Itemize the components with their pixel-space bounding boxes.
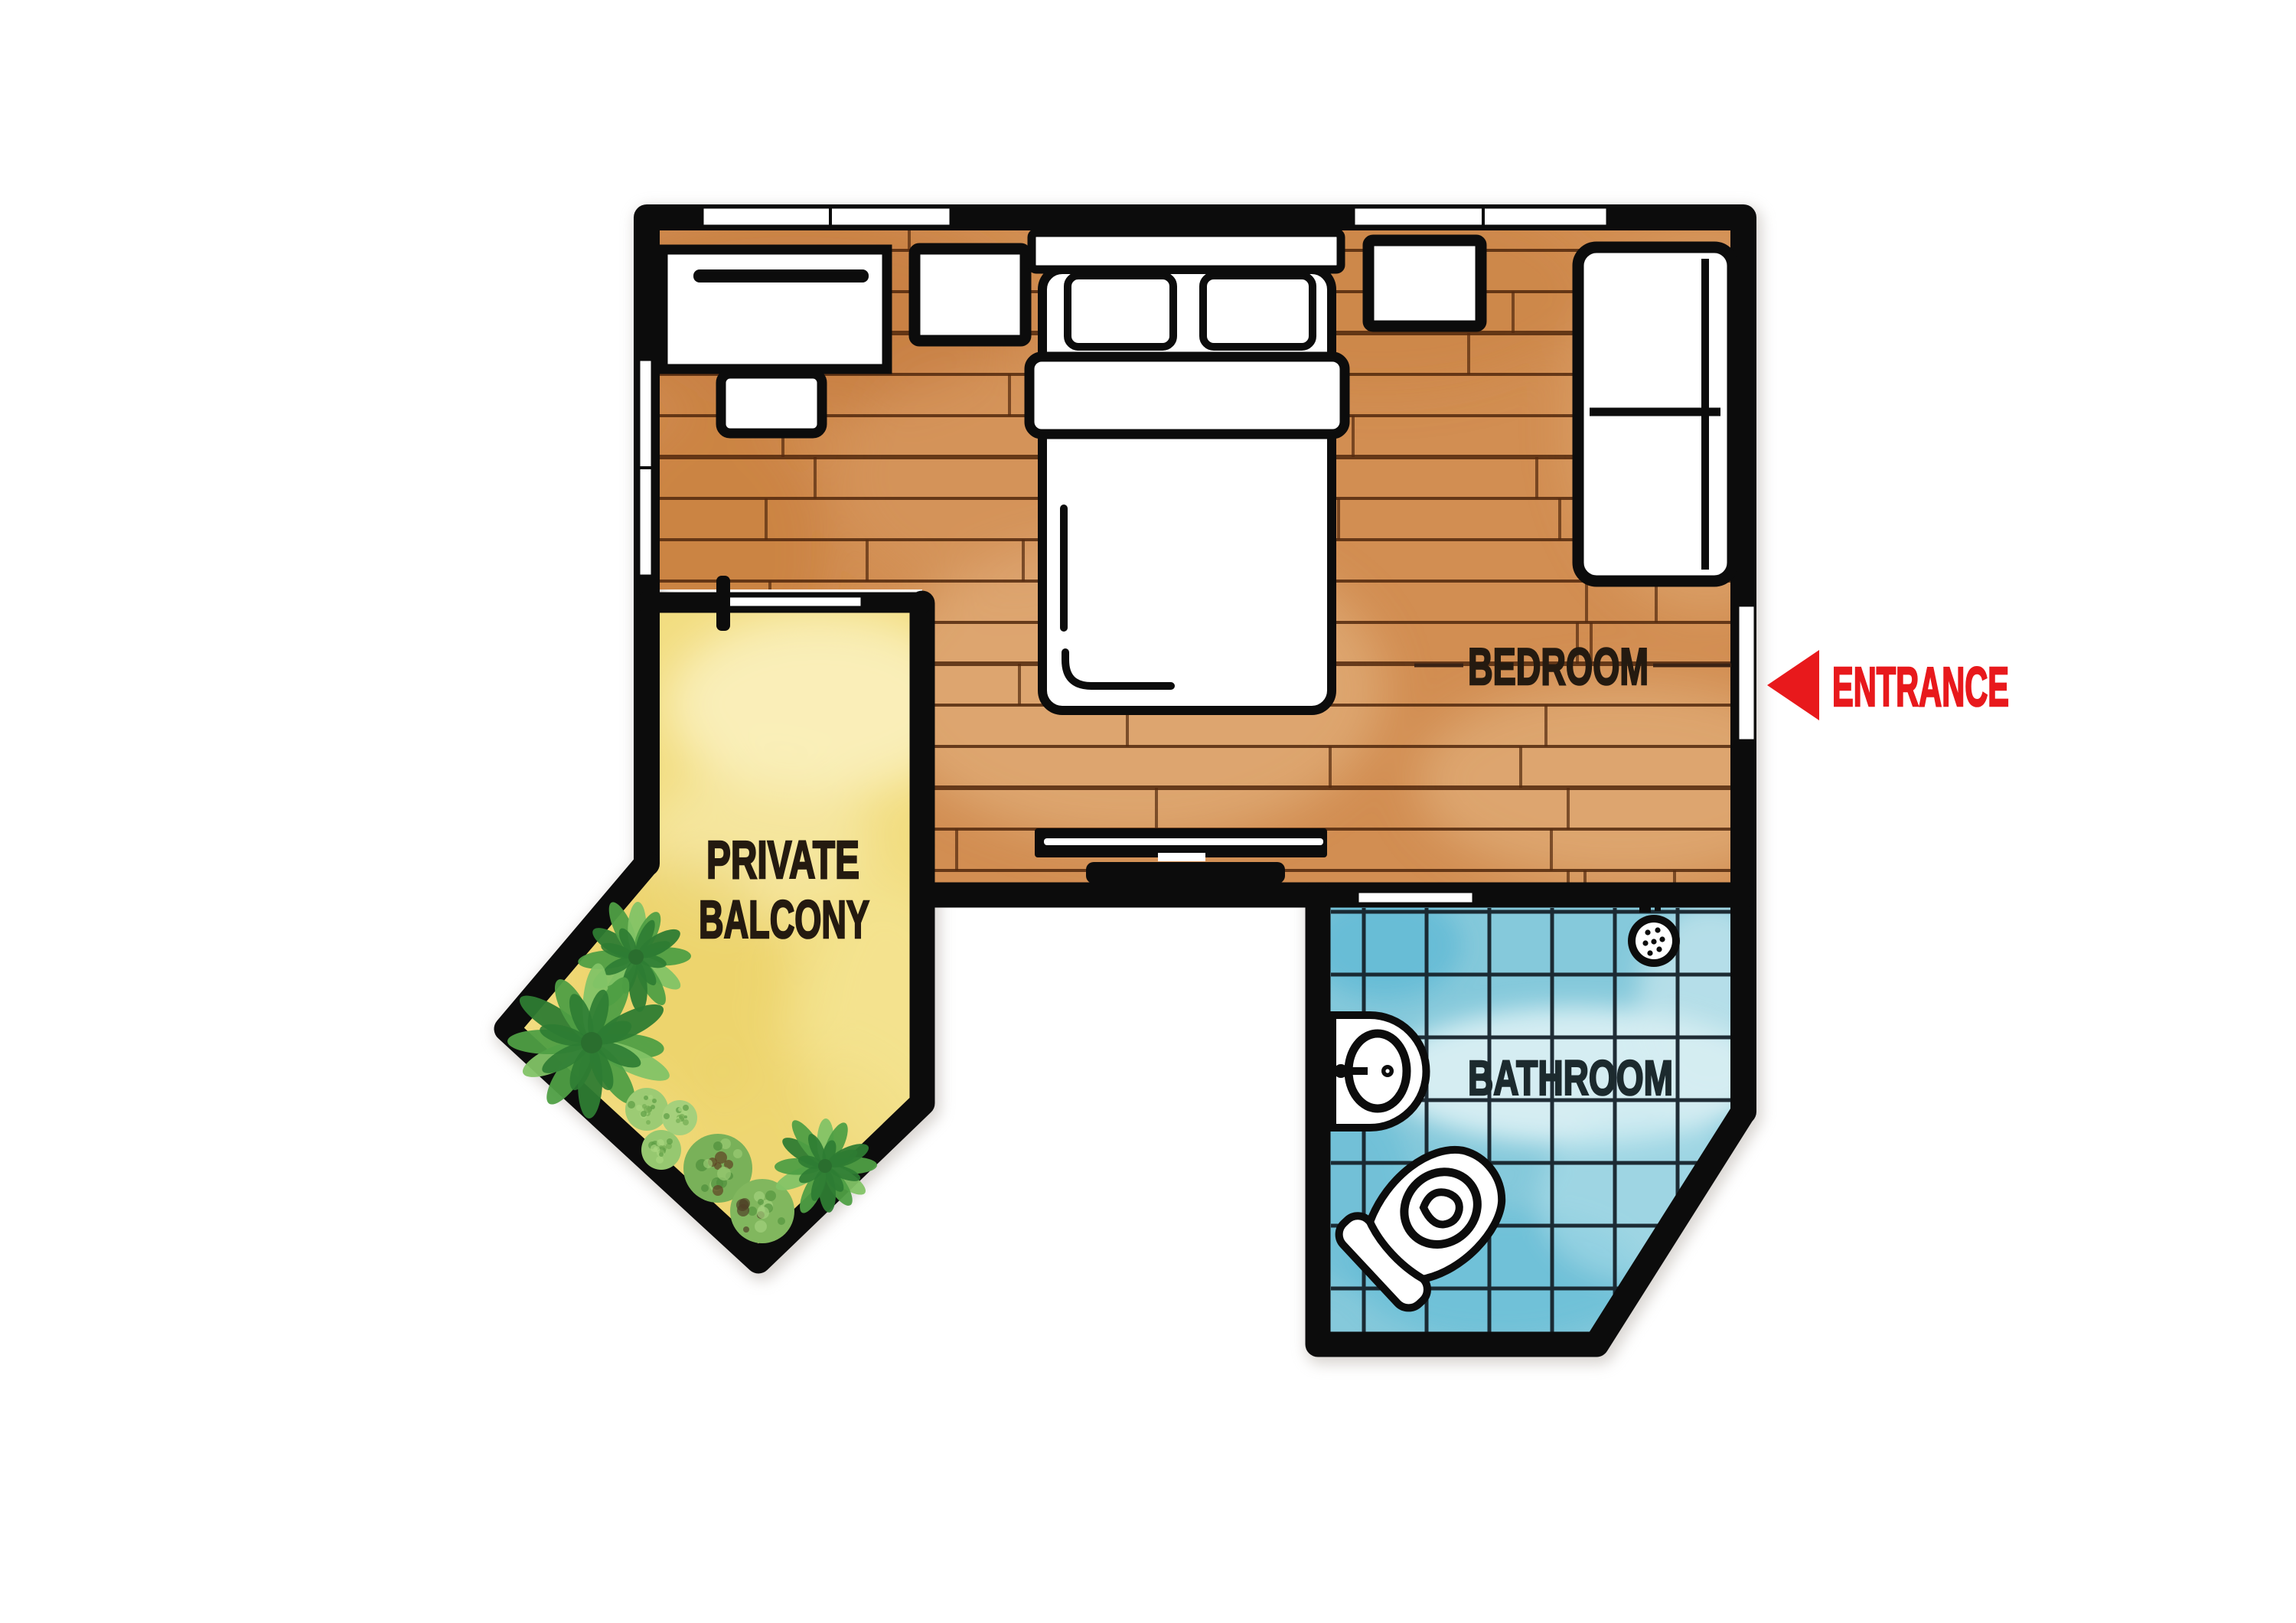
svg-text:BEDROOM: BEDROOM xyxy=(1468,638,1649,696)
svg-text:PRIVATE: PRIVATE xyxy=(706,830,859,890)
svg-text:BATHROOM: BATHROOM xyxy=(1468,1050,1673,1105)
svg-text:BALCONY: BALCONY xyxy=(699,890,869,949)
svg-text:ENTRANCE: ENTRANCE xyxy=(1832,657,2009,718)
